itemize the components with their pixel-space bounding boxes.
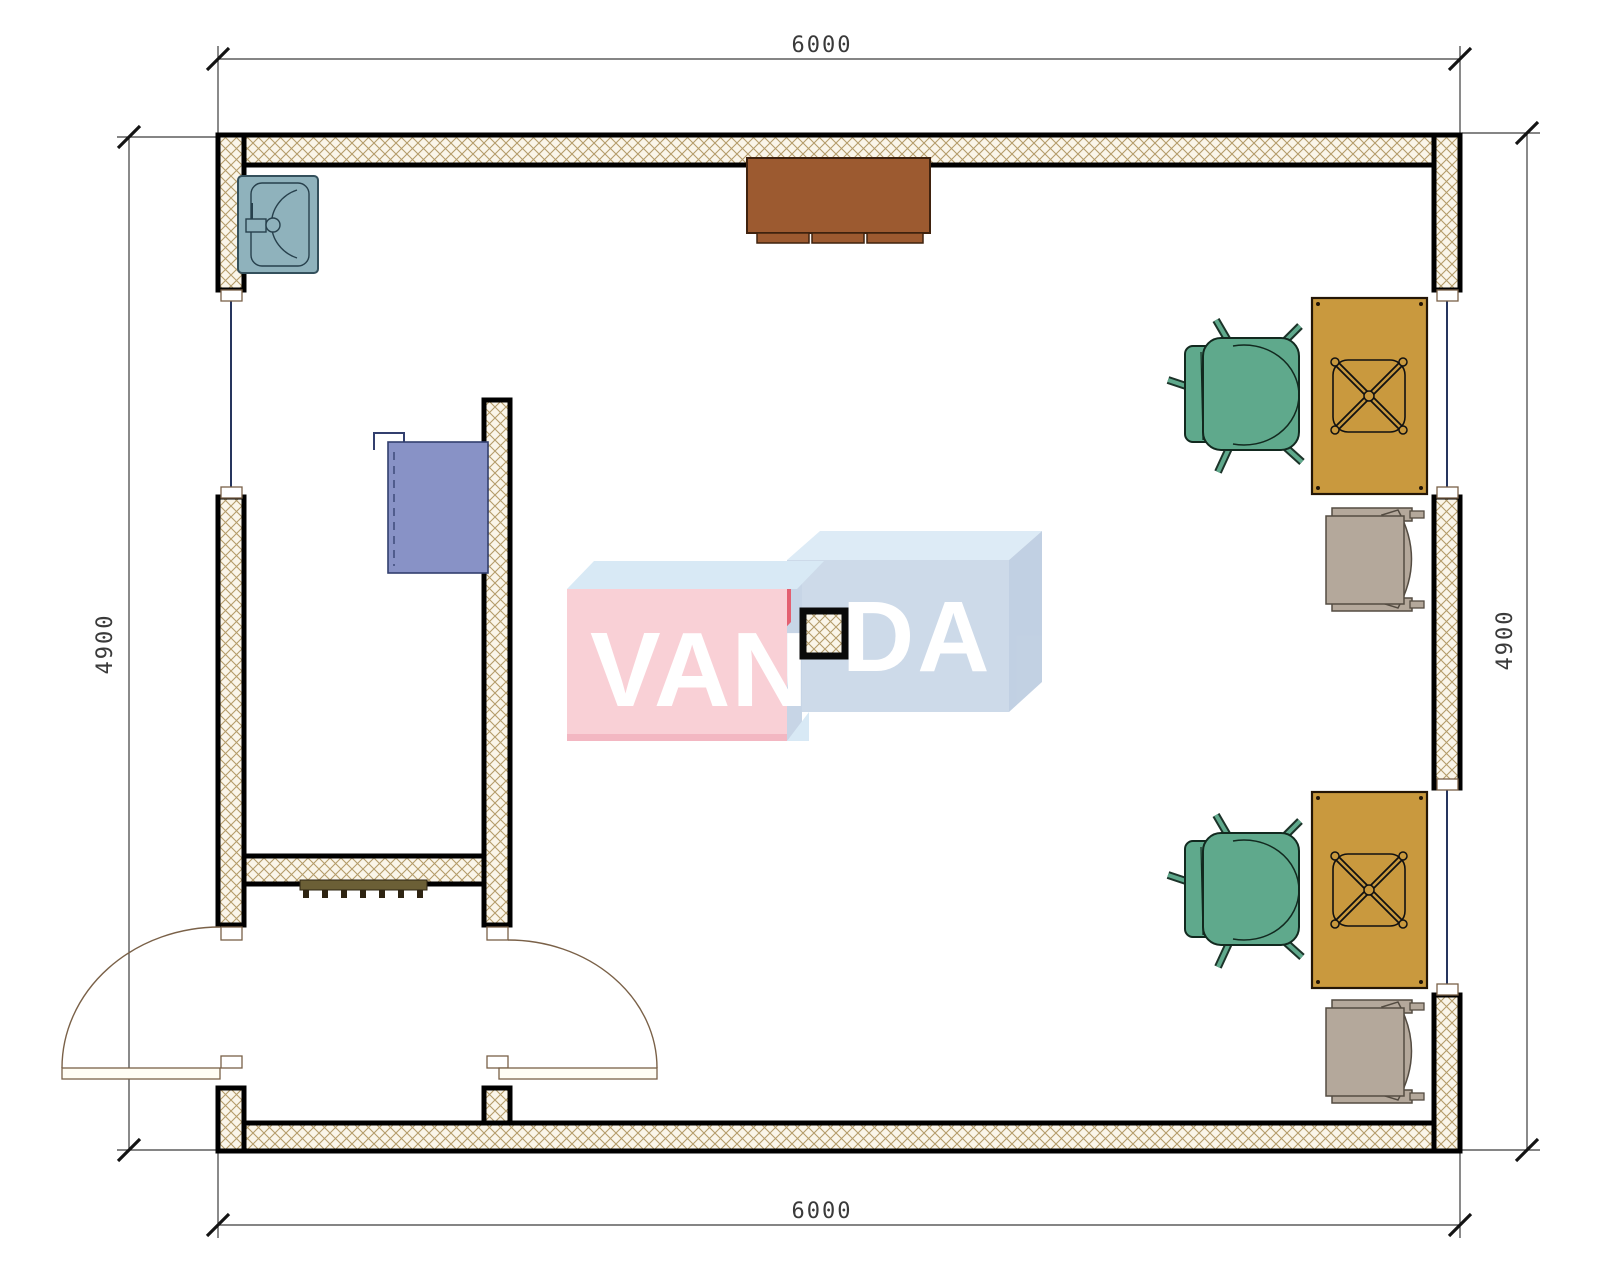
door-jamb (487, 1056, 508, 1068)
watermark-pink-box-top (567, 561, 824, 589)
watermark-pink-box-bottom-edge (567, 734, 787, 741)
exterior-wall-left-lower (218, 497, 244, 925)
door-leaf-interior (499, 1068, 657, 1079)
dimension-label-top: 6000 (792, 33, 853, 58)
structural-column (803, 611, 845, 656)
desk (1312, 298, 1427, 494)
window-frame-marker (221, 290, 242, 301)
exterior-wall-left-door-stub (218, 1088, 244, 1151)
interior-wall-door-stub (484, 1088, 510, 1123)
side-table-foot (812, 233, 864, 243)
window-frame-marker (1437, 487, 1458, 498)
armchair (1168, 815, 1302, 967)
armchair-seat (1203, 338, 1299, 450)
side-table (747, 158, 930, 243)
door-swing-arc-interior (508, 940, 657, 1068)
sink-tap (246, 219, 266, 232)
office-chair (1326, 1000, 1424, 1103)
exterior-wall-bottom (218, 1123, 1460, 1151)
window-frame-marker (1437, 779, 1458, 790)
exterior-wall-right-lower (1434, 995, 1460, 1151)
side-table-foot (757, 233, 809, 243)
watermark-blue-box-top (787, 531, 1042, 560)
desk (1312, 792, 1427, 988)
door-leaf-exterior (62, 1068, 220, 1079)
dimension-label-left: 4900 (93, 614, 118, 675)
wall-cabinet (374, 433, 488, 573)
dimension-label-right: 4900 (1493, 610, 1518, 671)
window-frame-marker (221, 487, 242, 498)
floor-plan-drawing: VAN DA 6000 6000 4900 4900 (0, 0, 1600, 1280)
sink (238, 176, 318, 273)
exterior-wall-right-upper (1434, 135, 1460, 290)
door-jamb (221, 927, 242, 940)
entrance-doors (62, 927, 657, 1079)
door-jamb (487, 927, 508, 940)
door-jamb (221, 1056, 242, 1068)
dimension-label-bottom: 6000 (792, 1199, 853, 1224)
sink-drain (266, 218, 280, 232)
office-chair-seat (1326, 516, 1404, 604)
window-frame-marker (1437, 290, 1458, 301)
watermark-text-van: VAN (590, 611, 809, 729)
watermark-blue-box-side (1009, 531, 1042, 712)
side-table-foot (867, 233, 923, 243)
exterior-wall-right-middle (1434, 497, 1460, 788)
floor-plan-canvas: VAN DA 6000 6000 4900 4900 (0, 0, 1600, 1280)
armchair (1168, 320, 1302, 472)
watermark-text-da: DA (842, 581, 992, 693)
window-frame-marker (1437, 984, 1458, 995)
office-chair (1326, 508, 1424, 611)
radiator (300, 880, 427, 898)
door-swing-arc-exterior (62, 927, 220, 1068)
